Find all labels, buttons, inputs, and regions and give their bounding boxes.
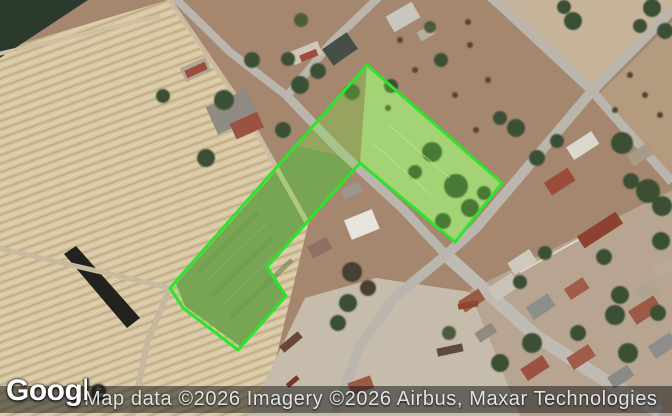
attribution-text: Map data ©2026 Imagery ©2026 Airbus, Max… xyxy=(84,388,658,411)
map-viewport[interactable]: Google Map data ©2026 Imagery ©2026 Airb… xyxy=(0,0,672,416)
google-logo[interactable]: Google xyxy=(6,372,87,410)
attribution-bar: Map data ©2026 Imagery ©2026 Airbus, Max… xyxy=(0,386,672,413)
satellite-imagery-layer xyxy=(0,0,672,416)
